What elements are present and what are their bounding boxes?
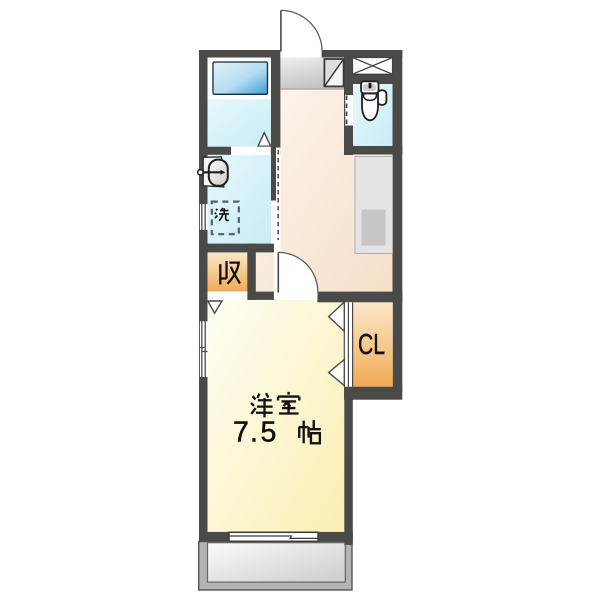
- svg-text:7: 7: [233, 417, 249, 449]
- svg-text:.: .: [250, 417, 258, 449]
- svg-text:CL: CL: [358, 329, 385, 361]
- svg-text:5: 5: [261, 417, 277, 449]
